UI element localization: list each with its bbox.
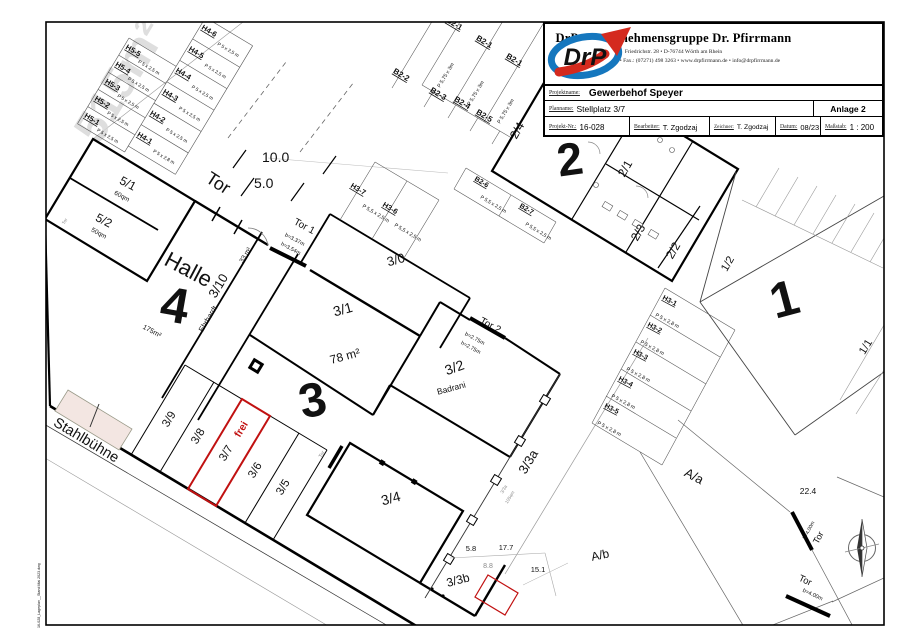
planname-row: Planname: Stellplatz 3/7 Anlage 2 — [545, 101, 882, 117]
dimension: 17.7 — [499, 543, 514, 552]
scale-value: 5.0 — [254, 175, 274, 191]
gate-label: Tor — [318, 450, 327, 459]
stall-label: B2-6 — [473, 176, 490, 190]
stall-number: 3/8 — [189, 427, 208, 447]
dimension: 15.1 — [531, 565, 546, 574]
projekt-nr-cell: Projekt-Nr.: 16-028 — [545, 117, 629, 137]
area-label: A/b — [590, 546, 611, 564]
logo-text: DrP — [564, 44, 608, 71]
bearbeiter-value: T. Zgodzaj — [663, 123, 698, 132]
stall-number: 3/6 — [246, 461, 265, 481]
zeichner-label: Zeichner: — [714, 124, 734, 130]
massstab-cell: Maßstab: 1 : 200 — [820, 117, 882, 137]
stall-label: B2-7 — [518, 203, 535, 217]
building-number: 3 — [294, 372, 331, 429]
building-number: 4 — [156, 275, 193, 335]
stall-label: B2-2 — [392, 67, 412, 84]
massstab-label: Maßstab: — [825, 124, 847, 130]
scale-value: 10.0 — [262, 149, 289, 165]
gate-label: Tor — [797, 573, 814, 589]
stall-label: H3-1 — [661, 295, 678, 308]
projekt-nr-value: 16-028 — [580, 123, 605, 132]
zeichner-cell: Zeichner: T. Zgodzaj — [709, 117, 775, 137]
stall-label: H3-7 — [349, 181, 368, 197]
room-area: 78 m² — [328, 345, 361, 366]
stall-label: H3-5 — [603, 403, 620, 416]
dimension: 5.8 — [466, 544, 476, 553]
dimension: 22.4 — [800, 486, 817, 496]
drp-logo: DrP — [545, 26, 633, 81]
stall-size: P 5 x 2,5 m — [165, 127, 189, 145]
compass-icon — [845, 519, 879, 577]
stall-size: P 5,5 x 2,5 m — [524, 222, 552, 242]
room-label: 3/3b — [445, 570, 471, 590]
stall-label: H4-3 — [161, 87, 180, 103]
room-label: 1/1 — [857, 337, 875, 356]
tenant-name: Badrani — [436, 379, 467, 396]
file-path-note: 16-028_Lageplan__Stand Mai 2023.dwg — [37, 563, 41, 628]
stall-size: P 5,5 x 2,5 m — [479, 195, 507, 215]
gate-bar — [786, 596, 830, 616]
bearbeiter-cell: Bearbeiter: T. Zgodzaj — [629, 117, 709, 137]
stall-size: P 5 x 2,5 m — [190, 84, 214, 102]
datum-label: Datum: — [780, 124, 797, 130]
room-note: 3/3a — [499, 484, 508, 495]
stall-label: H3-2 — [646, 322, 663, 335]
stall-label: H4-2 — [149, 109, 168, 125]
title-block-header: DrP - Unternehmensgruppe Dr. Pfirrmann F… — [545, 24, 882, 86]
planname-value: Stellplatz 3/7 — [576, 104, 625, 114]
stall-size: P 5 x 2,5 m — [216, 41, 240, 59]
h3-stall-column: H3-1 P 5 x 2,8 m H3-2 P 5 x 2,8 m H3-3 P… — [592, 288, 735, 465]
projektname-row: Projektname: Gewerbehof Speyer — [545, 86, 882, 101]
stall-label: H4-5 — [187, 44, 206, 60]
bearbeiter-label: Bearbeiter: — [634, 124, 660, 130]
room-label: 3/0 — [385, 250, 406, 269]
stall-label: H4-1 — [136, 130, 155, 146]
stall-size: P 5 x 2,5 m — [203, 63, 227, 81]
gate-dim: b=4.00m — [801, 588, 823, 603]
colonnade — [425, 338, 648, 598]
room-34-33-walls — [307, 443, 518, 616]
datum-value: 08/23 — [800, 123, 819, 132]
free-status: frei — [232, 419, 251, 439]
gate-label: Tor — [202, 168, 234, 198]
stall-label: H4-4 — [174, 66, 193, 83]
projektname-value: Gewerbehof Speyer — [589, 88, 683, 99]
building-number: 1 — [764, 268, 805, 329]
room-label: 3/1 — [331, 299, 354, 320]
dimension: 8.8 — [483, 563, 493, 570]
room-label: 1/2 — [719, 254, 737, 273]
anlage-cell: Anlage 2 — [813, 101, 882, 116]
planname-cell: Planname: Stellplatz 3/7 — [545, 101, 813, 116]
stall-size: P 5 x 2,5 m — [177, 106, 201, 124]
projekt-nr-label: Projekt-Nr.: — [549, 124, 577, 130]
area-label: A/a — [682, 465, 707, 488]
stall-label: H3-6 — [381, 200, 400, 216]
stall-number: 3/9 — [160, 410, 179, 430]
aa-strip — [640, 420, 884, 636]
projektname-label: Projektname: — [549, 90, 580, 96]
area-watermark: 515m² — [63, 10, 176, 151]
stall-label: H4-6 — [200, 23, 219, 39]
anlage-value: Anlage 2 — [830, 104, 865, 114]
stall-number-free: 3/7 — [217, 444, 236, 464]
meta-row: Projekt-Nr.: 16-028 Bearbeiter: T. Zgodz… — [545, 117, 882, 137]
title-block: DrP - Unternehmensgruppe Dr. Pfirrmann F… — [543, 22, 884, 137]
massstab-value: 1 : 200 — [850, 123, 874, 132]
datum-cell: Datum: 08/23 — [775, 117, 820, 137]
stall-size: P 5 x 2,8 m — [596, 420, 622, 438]
tenant-name: Ehrhardt — [197, 303, 220, 333]
stall-label: H3-4 — [617, 376, 634, 389]
stall-number: 3/5 — [274, 478, 293, 498]
planname-label: Planname: — [549, 106, 573, 112]
stall-size: P 5 x 2,8 m — [152, 149, 176, 167]
site-plan-page: 515m² H5-5 P 5 x 2,5 m H5-4 P 5 x 2,5 m … — [0, 0, 900, 636]
zeichner-value: T. Zgodzaj — [737, 124, 768, 131]
gate-label: Tor 1 — [292, 217, 317, 237]
room-label: 3/2 — [442, 356, 466, 378]
gate-label: Tor — [811, 530, 826, 546]
stall-size: P 5,5 x 2,5 m — [393, 223, 422, 244]
room-label: 3/3a — [515, 446, 541, 476]
room-note-area: 105qm — [504, 490, 516, 505]
